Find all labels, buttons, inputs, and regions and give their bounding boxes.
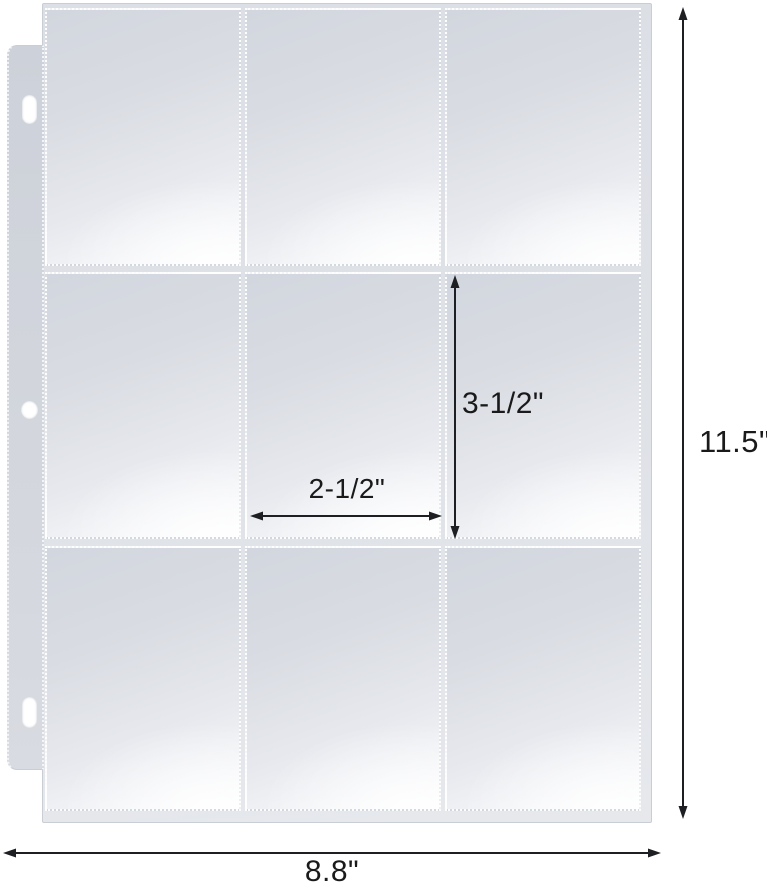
pocket-row1-col3 xyxy=(445,8,641,266)
binder-hole-top xyxy=(22,95,37,124)
pocket-row1-col2 xyxy=(245,8,441,266)
pocket-row1-col1 xyxy=(45,8,241,266)
binder-hole-middle xyxy=(21,401,38,419)
binder-hole-bottom xyxy=(22,697,37,728)
pocket-width-arrow xyxy=(249,507,443,525)
page-height-arrow xyxy=(675,6,691,820)
pocket-row3-col2 xyxy=(245,546,441,811)
binder-strip xyxy=(7,45,44,770)
page-height-label: 11.5" xyxy=(699,424,767,460)
pocket-row3-col1 xyxy=(45,546,241,811)
product-diagram: 3-1/2" 2-1/2" 11.5" 8.8" xyxy=(0,0,767,888)
pocket-row2-col1 xyxy=(45,272,241,539)
pocket-height-label: 3-1/2" xyxy=(462,387,544,421)
pocket-width-label: 2-1/2" xyxy=(295,473,399,505)
pocket-row3-col3 xyxy=(445,546,641,811)
page-width-label: 8.8" xyxy=(272,855,392,888)
